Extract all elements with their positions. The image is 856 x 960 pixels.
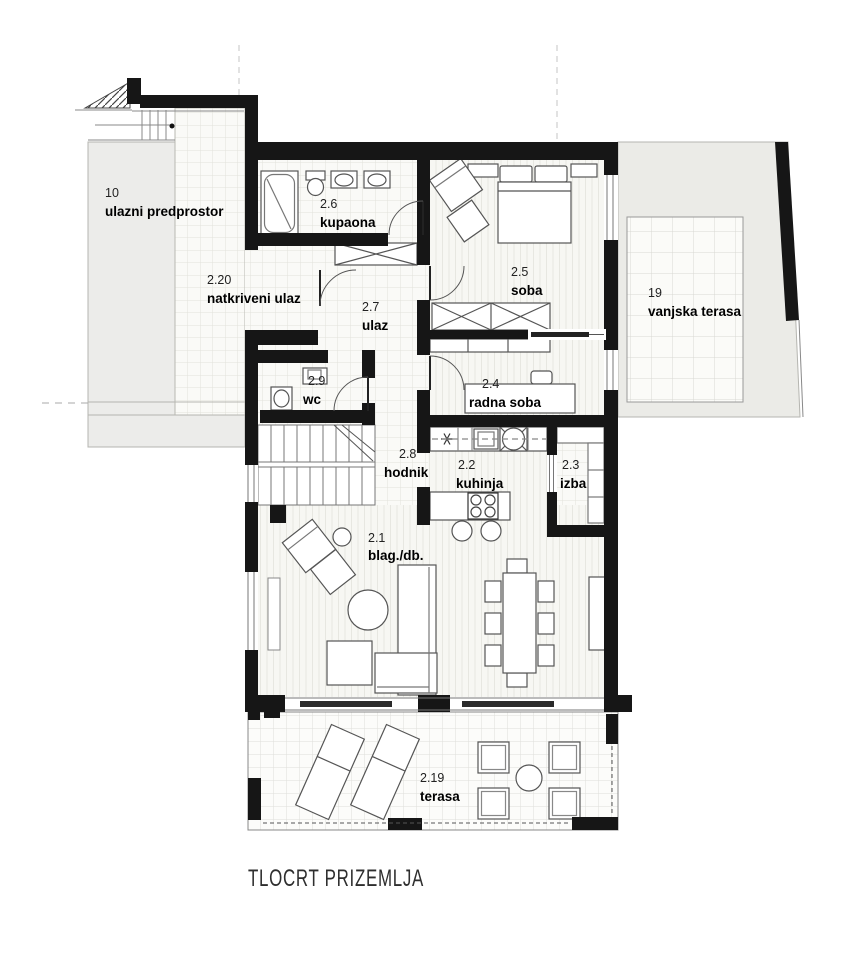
- terrace-post: [606, 714, 618, 744]
- entry-steps: [88, 415, 245, 447]
- terrace-post: [248, 712, 260, 720]
- wall-east: [604, 160, 618, 175]
- roof-hatch-icon: [85, 82, 130, 108]
- projection-lines: [239, 45, 557, 140]
- wall-corridor: [417, 487, 430, 525]
- window-sill: [268, 578, 280, 650]
- svg-text:vanjska terasa: vanjska terasa: [648, 304, 742, 319]
- wall-west: [245, 502, 258, 572]
- svg-text:2.3: 2.3: [562, 458, 579, 472]
- sink-icon: [331, 171, 357, 188]
- wc-sink-icon: [271, 387, 292, 410]
- svg-text:2.19: 2.19: [420, 771, 444, 785]
- wall-pantry: [547, 427, 557, 455]
- covered-entrance-area: [175, 108, 245, 415]
- wall-post: [127, 78, 141, 104]
- wall-wc: [258, 350, 328, 363]
- closet-front-icon: [430, 339, 550, 352]
- floor-plan-drawing: 10 ulazni predprostor 2.20 natkriveni ul…: [0, 0, 856, 960]
- svg-text:wc: wc: [302, 392, 322, 407]
- svg-text:2.8: 2.8: [399, 447, 416, 461]
- wall-wc: [362, 350, 375, 378]
- entry-forecourt-area: [88, 142, 175, 415]
- wardrobe-icon: [432, 303, 550, 330]
- wall-pier: [245, 695, 285, 712]
- terrace-post: [572, 817, 618, 830]
- wall-west: [245, 330, 258, 465]
- svg-text:ulaz: ulaz: [362, 318, 389, 333]
- sliding-panel: [462, 701, 554, 707]
- svg-text:2.9: 2.9: [308, 374, 325, 388]
- svg-text:radna soba: radna soba: [469, 395, 542, 410]
- page-title: TLOCRT PRIZEMLJA: [248, 865, 424, 892]
- terrace-chair-icon: [478, 788, 509, 819]
- svg-text:2.4: 2.4: [482, 377, 499, 391]
- wall-east: [604, 240, 618, 350]
- wall-east: [604, 390, 618, 712]
- terrace-post: [264, 712, 280, 718]
- wall-study-south: [428, 415, 604, 427]
- staircase: [258, 425, 375, 505]
- svg-text:2.20: 2.20: [207, 273, 231, 287]
- terrace-post: [388, 818, 422, 830]
- wall-north: [245, 142, 618, 160]
- wall-stairs: [260, 410, 375, 423]
- svg-text:2.2: 2.2: [458, 458, 475, 472]
- svg-text:soba: soba: [511, 283, 543, 298]
- wall-pantry-south: [547, 525, 618, 537]
- wall-corridor: [417, 300, 430, 355]
- wall-pantry: [547, 492, 557, 525]
- svg-text:19: 19: [648, 286, 662, 300]
- bar-stool-icon: [481, 521, 501, 541]
- terrace-table-icon: [516, 765, 542, 791]
- pantry-sliding-door: [547, 455, 557, 492]
- window-east-bedroom: [604, 175, 618, 240]
- wardrobe-icon: [335, 243, 417, 265]
- floor-plan-page: 10 ulazni predprostor 2.20 natkriveni ul…: [0, 0, 856, 960]
- svg-text:kupaona: kupaona: [320, 215, 376, 230]
- sink-icon: [364, 171, 390, 188]
- bar-stool-icon: [452, 521, 472, 541]
- svg-text:ulazni predprostor: ulazni predprostor: [105, 204, 224, 219]
- toilet-icon: [306, 171, 325, 196]
- bathtub-icon: [261, 171, 298, 236]
- kitchen-counter-icon: [430, 427, 547, 451]
- coffee-table-icon: [348, 590, 388, 630]
- survey-point: [170, 124, 175, 129]
- svg-text:blag./db.: blag./db.: [368, 548, 424, 563]
- window-west-stairs: [245, 465, 258, 502]
- svg-text:2.5: 2.5: [511, 265, 528, 279]
- sliding-door: [528, 329, 606, 340]
- sliding-panel: [300, 701, 392, 707]
- svg-text:10: 10: [105, 186, 119, 200]
- svg-text:kuhinja: kuhinja: [456, 476, 504, 491]
- wall-pier: [270, 505, 286, 523]
- wall-bathroom-south: [245, 233, 388, 246]
- svg-text:2.1: 2.1: [368, 531, 385, 545]
- terrace-post: [248, 778, 261, 820]
- terrace-chair-icon: [478, 742, 509, 773]
- wall: [140, 95, 258, 108]
- terrace-chair-icon: [549, 788, 580, 819]
- wall: [245, 330, 318, 345]
- ottoman-icon: [327, 641, 372, 685]
- svg-text:terasa: terasa: [420, 789, 460, 804]
- svg-text:izba: izba: [560, 476, 587, 491]
- svg-text:2.7: 2.7: [362, 300, 379, 314]
- terrace-chair-icon: [549, 742, 580, 773]
- wall-pier: [604, 695, 632, 712]
- svg-text:natkriveni ulaz: natkriveni ulaz: [207, 291, 301, 306]
- svg-text:2.6: 2.6: [320, 197, 337, 211]
- svg-text:hodnik: hodnik: [384, 465, 429, 480]
- side-table-icon: [333, 528, 351, 546]
- window-east-study: [604, 350, 618, 390]
